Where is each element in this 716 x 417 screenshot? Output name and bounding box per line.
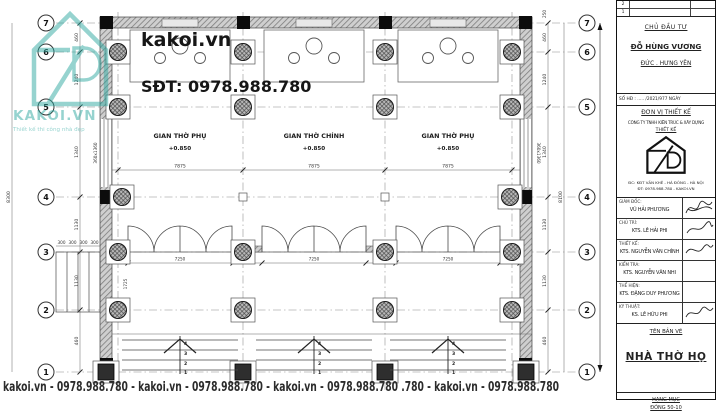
staff-row: KỸ THUẬT:KS. LÊ HỮU PHI — [617, 303, 715, 324]
floor-plan-svg: 8300 8100 250 460 1240 1340 1130 1130 46… — [0, 0, 616, 400]
watermark-bottom: kakoi.vn - 0978.988.780 - kakoi.vn - 097… — [3, 380, 559, 395]
svg-text:4: 4 — [184, 341, 187, 347]
svg-text:GIAN THỜ PHỤ: GIAN THỜ PHỤ — [154, 131, 207, 140]
svg-text:7250: 7250 — [443, 257, 454, 262]
staff-row: THỂ HIỆN:KTS. ĐẶNG DUY PHƯƠNG — [617, 282, 715, 303]
svg-text:300: 300 — [69, 240, 77, 245]
company-name: CÔNG TY TNHH KIẾN TRÚC & XÂY DỰNG — [617, 120, 715, 125]
svg-text:1: 1 — [318, 370, 321, 376]
svg-text:3: 3 — [584, 248, 590, 257]
svg-text:300: 300 — [58, 240, 66, 245]
svg-text:4: 4 — [452, 341, 455, 347]
signature — [682, 261, 715, 281]
revision-number: 1 — [617, 9, 630, 17]
signature — [682, 198, 715, 218]
drawing-sheet: { "watermark": { "brand": "kakoi.vn", "p… — [0, 0, 716, 400]
svg-text:7: 7 — [43, 19, 49, 28]
svg-text:1: 1 — [43, 368, 49, 377]
svg-text:1: 1 — [584, 368, 590, 377]
svg-text:4: 4 — [318, 341, 321, 347]
company-name-2: THIẾT KẾ — [617, 128, 715, 133]
svg-text:+0.850: +0.850 — [437, 146, 459, 152]
altar-table — [398, 30, 498, 82]
svg-text:300: 300 — [80, 240, 88, 245]
svg-text:1: 1 — [452, 370, 455, 376]
svg-text:Thiết kế thi công nhà đẹp: Thiết kế thi công nhà đẹp — [12, 126, 85, 133]
svg-text:460: 460 — [542, 337, 548, 346]
svg-text:5: 5 — [584, 103, 590, 112]
svg-text:3: 3 — [184, 351, 187, 357]
client-name: ĐỖ HÙNG VƯƠNG — [617, 42, 715, 51]
svg-text:2: 2 — [318, 361, 321, 367]
svg-text:8100: 8100 — [558, 191, 564, 203]
svg-text:1130: 1130 — [74, 275, 80, 287]
svg-text:3: 3 — [43, 248, 49, 257]
revision-table: 2 1 — [617, 1, 715, 17]
svg-text:7875: 7875 — [174, 164, 186, 170]
svg-text:3: 3 — [318, 351, 321, 357]
client-label: CHỦ ĐẦU TƯ — [617, 24, 715, 31]
sheet-name: NHÀ THỜ HỌ — [617, 351, 715, 363]
signature — [682, 219, 715, 239]
signature — [682, 282, 715, 302]
svg-text:1: 1 — [184, 370, 187, 376]
svg-text:KAKOI.VN: KAKOI.VN — [13, 108, 97, 124]
watermark-phone: SĐT: 0978.988.780 — [141, 77, 311, 96]
svg-text:2: 2 — [184, 361, 187, 367]
svg-text:4: 4 — [584, 193, 590, 202]
svg-text:7250: 7250 — [309, 257, 320, 262]
svg-text:6: 6 — [584, 48, 590, 57]
company-logo-icon — [644, 135, 688, 175]
svg-text:+0.850: +0.850 — [303, 146, 325, 152]
window-right — [520, 119, 532, 187]
svg-text:7250: 7250 — [175, 257, 186, 262]
front-wall — [112, 246, 520, 252]
side-steps — [56, 252, 100, 312]
svg-text:+0.850: +0.850 — [169, 146, 191, 152]
svg-text:1340: 1340 — [74, 146, 80, 158]
svg-text:1130: 1130 — [542, 219, 548, 231]
window-left — [100, 119, 112, 187]
svg-text:460: 460 — [74, 33, 80, 42]
design-unit-label: ĐƠN VỊ THIẾT KẾ — [617, 110, 715, 116]
revision-number: 2 — [617, 1, 630, 8]
signature — [682, 303, 715, 324]
door-swings — [128, 226, 500, 252]
svg-text:300: 300 — [91, 240, 99, 245]
svg-text:2: 2 — [43, 306, 49, 315]
svg-text:1340: 1340 — [542, 146, 548, 158]
svg-text:1240: 1240 — [542, 74, 548, 86]
svg-text:GIAN THỜ CHÍNH: GIAN THỜ CHÍNH — [284, 131, 345, 140]
svg-text:1725: 1725 — [123, 278, 128, 289]
entrance-stairs: 4 3 2 1 4 3 2 1 4 3 2 1 — [122, 336, 506, 376]
signature — [682, 240, 715, 260]
svg-text:250: 250 — [542, 10, 547, 18]
svg-text:1130: 1130 — [542, 275, 548, 287]
kakoi-logo-watermark: KAKOI.VN Thiết kế thi công nhà đẹp — [12, 14, 106, 133]
svg-text:4: 4 — [43, 193, 49, 202]
watermark-brand: kakoi.vn — [141, 29, 231, 51]
svg-text:360x1360: 360x1360 — [93, 142, 98, 163]
staff-table: GIÁM ĐỐC:VŨ HẢI PHƯƠNG CHỦ TRÌ:KTS. LÊ H… — [617, 198, 715, 324]
svg-text:1130: 1130 — [74, 219, 80, 231]
svg-text:360x1360: 360x1360 — [536, 142, 541, 163]
company-phone: ĐT: 0978.988.780 - KAKOI.VN — [617, 186, 715, 191]
svg-text:7875: 7875 — [442, 164, 454, 170]
contract-line: SỐ HĐ : ..... /2021/977 NGÀY — [617, 94, 715, 106]
company-address: ĐC: KĐT VĂN KHÊ - HÀ ĐÔNG - HÀ NỘI — [617, 180, 715, 185]
svg-text:3: 3 — [452, 351, 455, 357]
svg-text:2: 2 — [452, 361, 455, 367]
svg-text:7: 7 — [584, 19, 590, 28]
item-section: HẠNG MỤC ĐÓNG 50-10 — [617, 397, 715, 417]
staff-row: THIẾT KẾ:KTS. NGUYỄN VĂN CHÍNH — [617, 240, 715, 261]
client-address: ĐỨC . HƯNG YÊN — [617, 61, 715, 67]
sheet-name-section: TÊN BẢN VẼ NHÀ THỜ HỌ — [617, 329, 715, 393]
item-label: HẠNG MỤC — [617, 397, 715, 403]
room-labels: GIAN THỜ PHỤ +0.850 GIAN THỜ CHÍNH +0.85… — [154, 131, 475, 152]
title-block: 2 1 CHỦ ĐẦU TƯ ĐỖ HÙNG VƯƠNG ĐỨC . HƯNG … — [616, 0, 716, 400]
contract-row: SỐ HĐ : ..... /2021/977 NGÀY — [617, 94, 715, 106]
svg-text:2: 2 — [584, 306, 590, 315]
svg-text:460: 460 — [542, 33, 548, 42]
altar-table — [264, 30, 364, 82]
svg-text:460: 460 — [74, 337, 80, 346]
svg-text:GIAN THỜ PHỤ: GIAN THỜ PHỤ — [422, 131, 475, 140]
design-unit-section: ĐƠN VỊ THIẾT KẾ CÔNG TY TNHH KIẾN TRÚC &… — [617, 110, 715, 198]
svg-text:7875: 7875 — [308, 164, 320, 170]
staff-row: CHỦ TRÌ:KTS. LÊ HẢI PHI — [617, 219, 715, 240]
item-value: ĐÓNG 50-10 — [617, 405, 715, 411]
staff-row: KIỂM TRA:KTS. NGUYỄN VĂN NHI — [617, 261, 715, 282]
client-section: CHỦ ĐẦU TƯ ĐỖ HÙNG VƯƠNG ĐỨC . HƯNG YÊN — [617, 24, 715, 94]
staff-row: GIÁM ĐỐC:VŨ HẢI PHƯƠNG — [617, 198, 715, 219]
svg-text:8300: 8300 — [6, 191, 12, 203]
sheet-name-label: TÊN BẢN VẼ — [617, 329, 715, 335]
